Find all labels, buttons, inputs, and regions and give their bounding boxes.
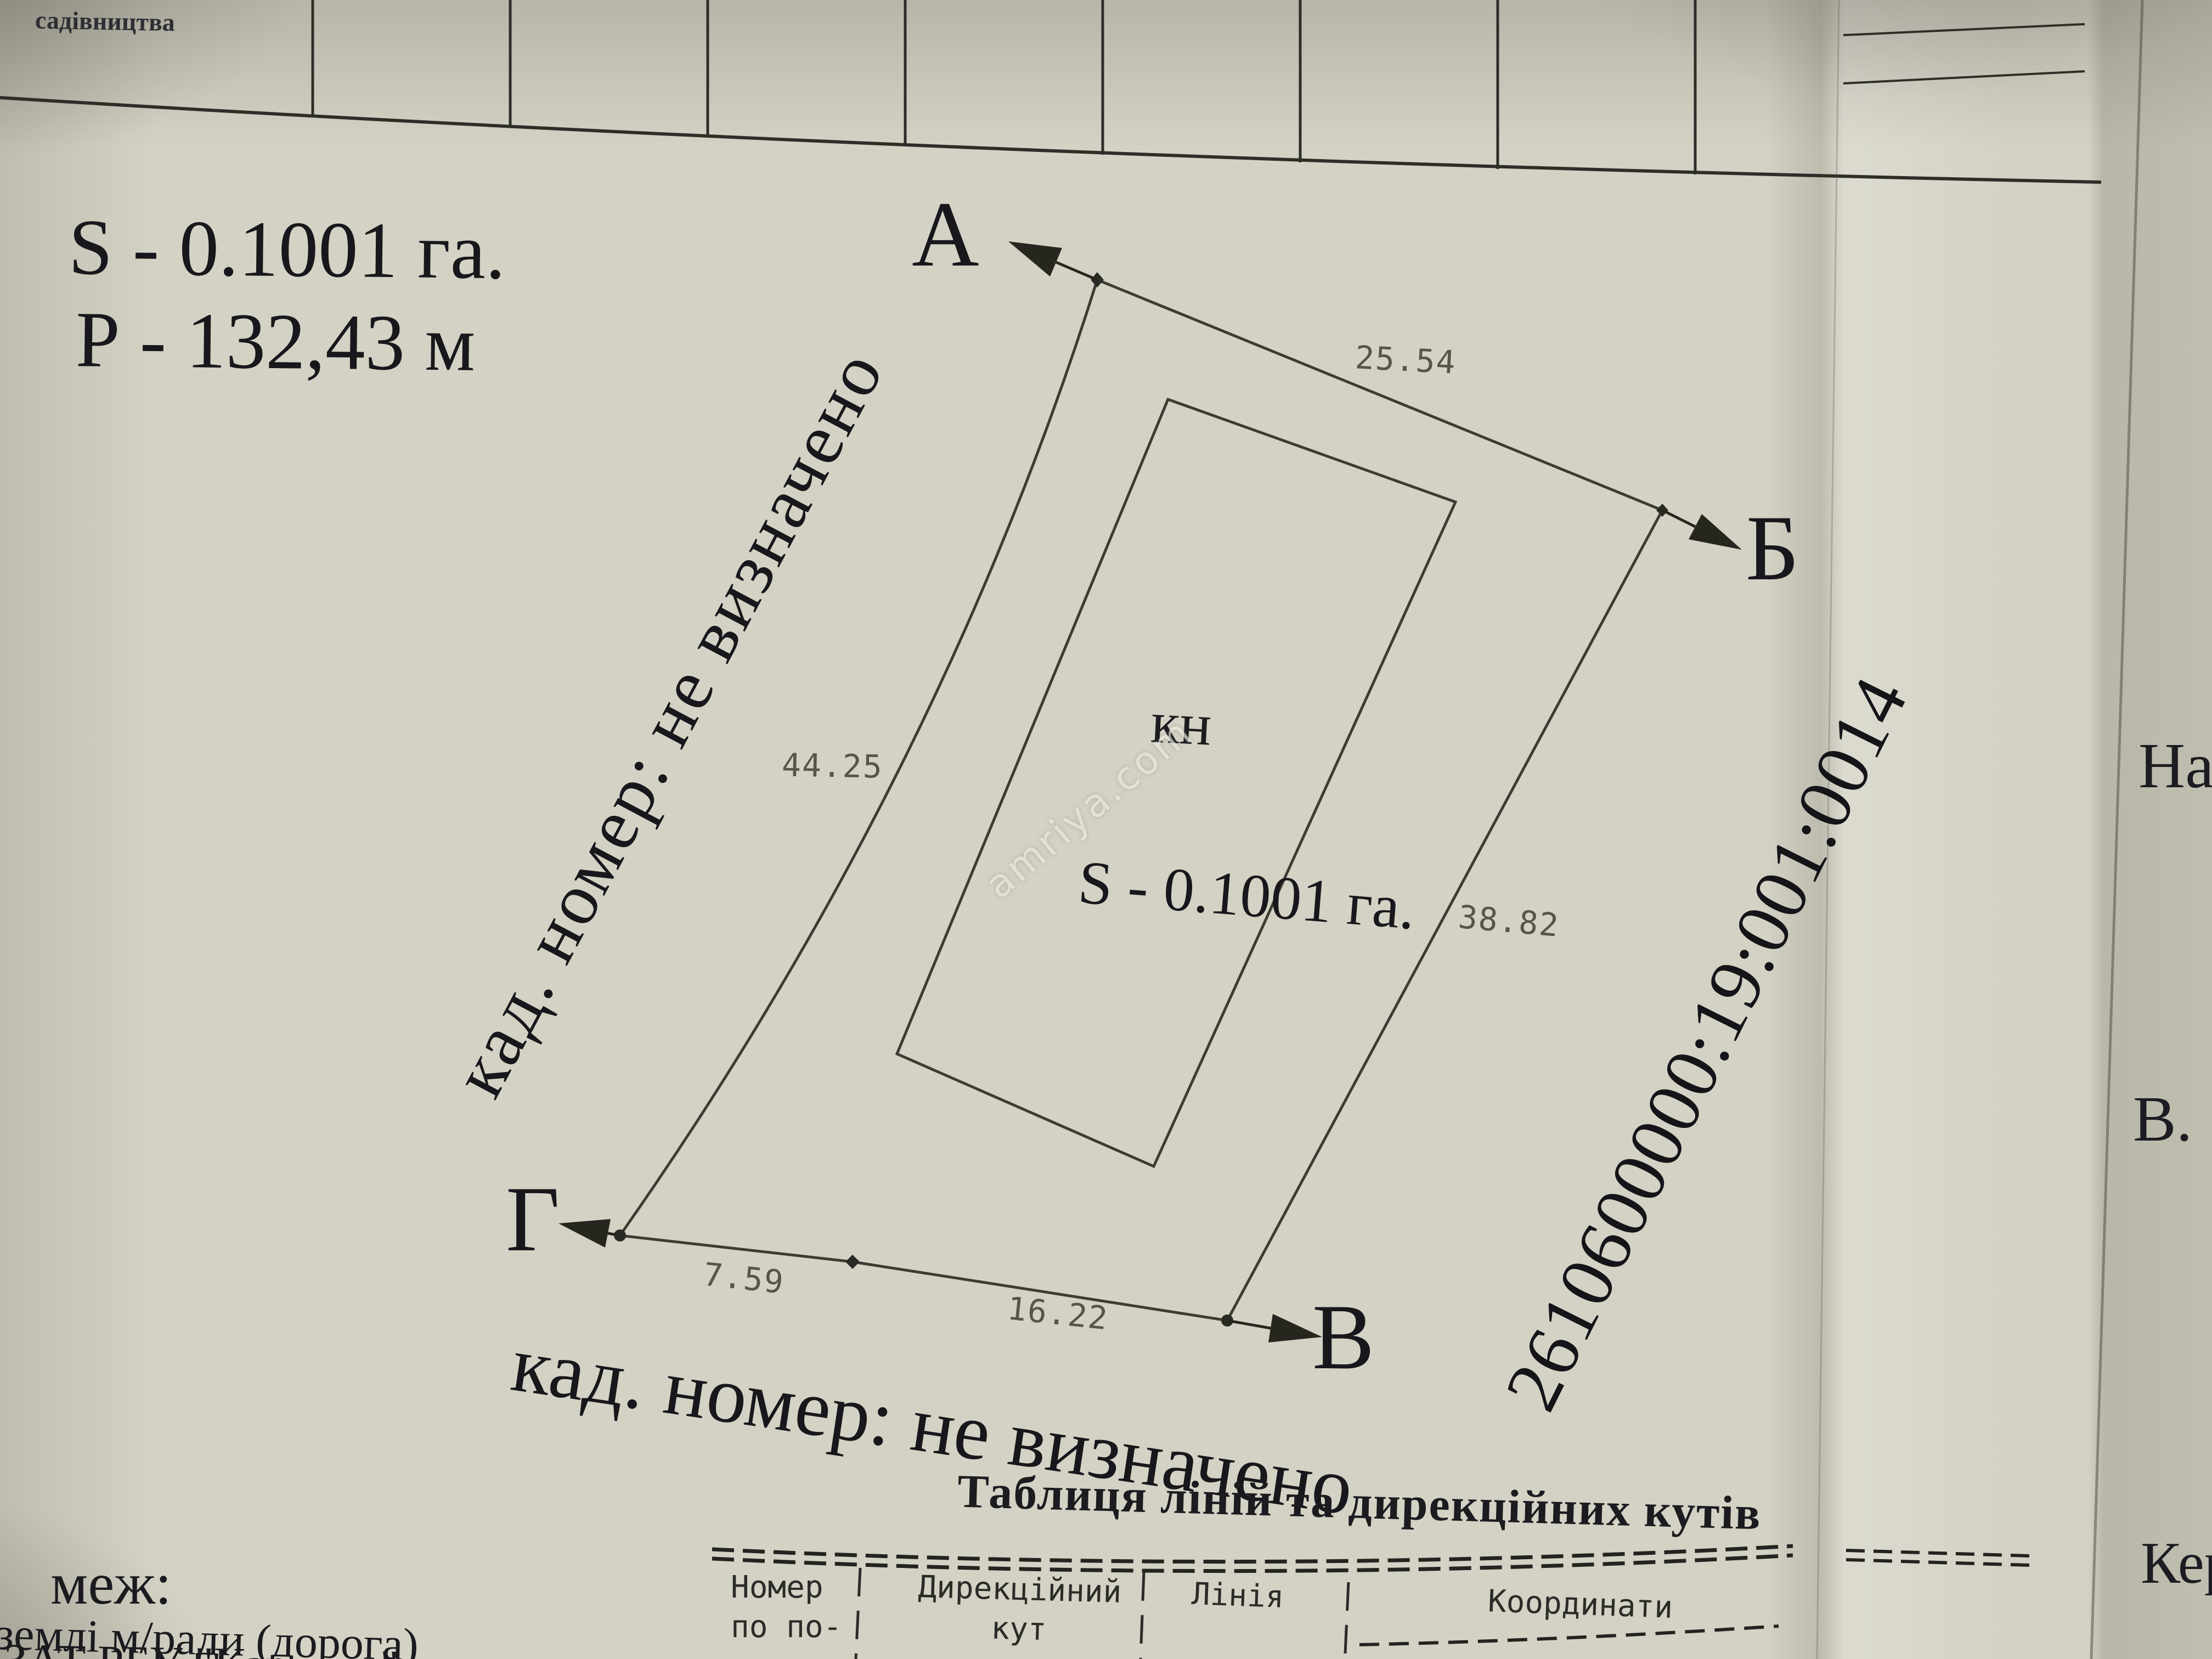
vertex-label-a: А <box>912 181 979 288</box>
top-table-grid <box>0 0 2101 182</box>
table-col-bearing: Дирекційний кут <box>892 1567 1147 1652</box>
table-col-coords: Координати <box>1487 1583 1673 1626</box>
table-col-number: Номер по по- рядку <box>731 1568 842 1659</box>
vertex-markers <box>614 272 1668 1327</box>
area-value: S - 0.1001 га. <box>68 202 506 297</box>
dim-ab: 25.54 <box>1354 338 1457 381</box>
top-note: садівництва <box>35 5 176 37</box>
next-page-fragment-na: На <box>2138 729 2212 803</box>
perimeter-value: Р - 132,43 м <box>75 294 476 390</box>
vertex-label-b: Б <box>1746 495 1799 602</box>
dim-ga: 44.25 <box>781 746 883 785</box>
vertex-label-v: В <box>1312 1284 1374 1391</box>
table-col-line: Лінія <box>1191 1576 1285 1615</box>
vertex-arrows <box>558 241 1742 1342</box>
photo-of-cadastral-plan: садівництва S - 0.1001 га. Р - 132,43 м … <box>0 0 2212 1659</box>
page-edge-line <box>2091 0 2142 1659</box>
next-page-fragment-v: В. <box>2133 1082 2192 1156</box>
next-page-fragment-ker: Кер <box>2141 1530 2212 1598</box>
vertex-label-g: Г <box>506 1166 560 1273</box>
neighbors-label: меж: <box>50 1550 172 1618</box>
